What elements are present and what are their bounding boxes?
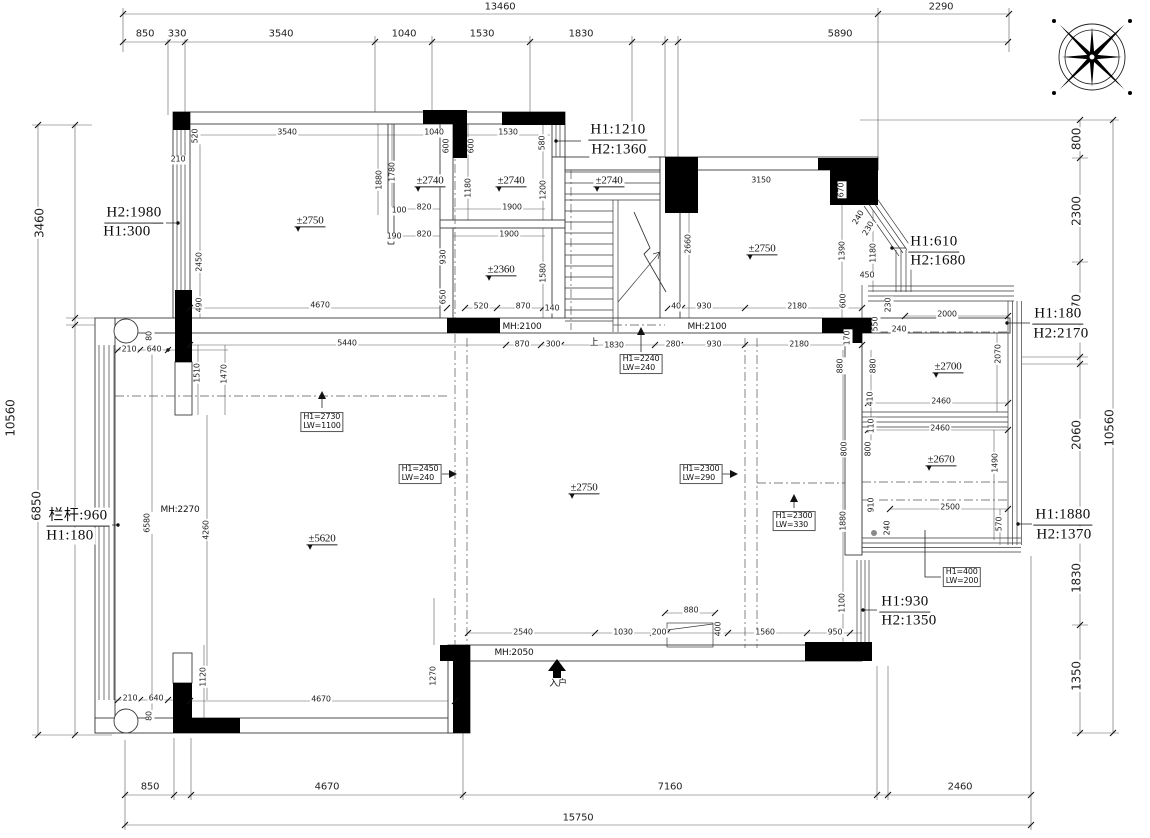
dim-label: 15750: [562, 812, 595, 823]
dim-label: 820: [416, 231, 433, 240]
opening-size-label: H1=2730 LW=1100: [300, 412, 343, 432]
dim-label: 1270: [430, 665, 439, 687]
dim-label: 170: [844, 330, 853, 347]
dim-label: 2300: [1070, 195, 1083, 227]
dim-label: 2460: [930, 398, 952, 407]
dim-label: 190: [386, 233, 403, 242]
dim-label: 240: [891, 326, 908, 335]
dim-label: 930: [440, 249, 449, 266]
dim-label: 2000: [936, 311, 958, 320]
level-mark-triangle-icon: ▼: [747, 254, 752, 262]
dim-label: 1180: [465, 177, 474, 199]
dim-label: 930: [696, 303, 713, 312]
dim-label: 1530: [497, 129, 519, 138]
dim-label: 1830: [603, 342, 625, 351]
dim-label: 100: [391, 207, 408, 216]
leader-label: H2:1680: [908, 253, 967, 270]
dim-label: 650: [440, 289, 449, 306]
opening-height-label: MH:2100: [501, 322, 542, 332]
level-mark-triangle-icon: ▼: [415, 186, 420, 194]
dim-label: 110: [868, 418, 877, 435]
level-mark-triangle-icon: ▼: [307, 544, 312, 552]
level-mark-triangle-icon: ▼: [926, 465, 931, 473]
dim-label: 3540: [268, 28, 295, 39]
dim-label: 4670: [314, 781, 341, 792]
dim-label: 2180: [788, 341, 810, 350]
dim-label: 600: [443, 138, 452, 155]
dim-label: 870: [514, 341, 531, 350]
dim-label: 2290: [928, 1, 955, 12]
dim-label: 6580: [144, 512, 153, 534]
dim-label: 580: [539, 135, 548, 152]
dim-label: 600: [840, 293, 849, 310]
dim-label: 1900: [498, 231, 520, 240]
dim-label: 140: [544, 305, 561, 314]
dim-label: 520: [473, 303, 490, 312]
leader-label: H2:2170: [1031, 326, 1090, 343]
leader-label: H1:610: [908, 234, 959, 253]
dim-label: 2060: [1070, 419, 1083, 451]
level-mark-triangle-icon: ▼: [496, 186, 501, 194]
dim-label: 950: [827, 629, 844, 638]
dim-label: 410: [867, 391, 876, 408]
dim-label: 880: [837, 358, 846, 375]
dim-label: 1180: [870, 242, 879, 264]
opening-size-label: H1=400 LW=200: [943, 567, 981, 587]
opening-size-label: H1=2300 LW=290: [680, 464, 723, 484]
dim-label: 850: [140, 781, 161, 792]
dim-label: 910: [868, 497, 877, 514]
dim-label: 2180: [786, 303, 808, 312]
dim-label: 1830: [568, 28, 595, 39]
opening-size-label: H1=2450 LW=240: [399, 464, 442, 484]
dim-label: 2460: [947, 781, 974, 792]
dim-label: 2540: [512, 629, 534, 638]
dim-label: 600: [468, 138, 477, 155]
dim-label: 210: [122, 695, 139, 704]
leader-label: H2:1980: [104, 205, 163, 224]
dim-label: 1580: [540, 262, 549, 284]
dim-label: 1900: [501, 204, 523, 213]
dim-label: 930: [706, 341, 723, 350]
leader-label: H1:300: [101, 224, 152, 241]
dim-label: 800: [841, 441, 850, 458]
dim-label: 1880: [840, 510, 849, 532]
level-mark-triangle-icon: ▼: [594, 186, 599, 194]
text-label: 上: [590, 338, 599, 348]
opening-height-label: MH:2050: [493, 648, 534, 658]
dim-label: 1490: [992, 452, 1001, 474]
dim-label: 800: [865, 441, 874, 458]
dim-label: 4670: [310, 696, 332, 705]
dim-label: 550: [872, 316, 881, 333]
level-mark-triangle-icon: ▼: [486, 275, 491, 283]
dim-label: 7160: [657, 781, 684, 792]
dim-label: 1200: [540, 179, 549, 201]
dim-label: 200: [651, 629, 668, 638]
dim-label: 400: [715, 621, 724, 638]
dim-label: 40: [670, 303, 682, 312]
dim-label: 1100: [839, 592, 848, 614]
opening-height-label: MH:2100: [686, 322, 727, 332]
dim-label: 4260: [203, 519, 212, 541]
dim-label: 520: [192, 128, 201, 145]
dim-label: 1040: [391, 28, 418, 39]
dim-label: 2660: [685, 233, 694, 255]
leader-label: H1:1880: [1033, 507, 1092, 526]
dim-label: 3540: [276, 129, 298, 138]
dim-label: 230: [885, 297, 894, 314]
dim-label: 880: [870, 358, 879, 375]
dim-label: 330: [167, 28, 188, 39]
level-mark-triangle-icon: ▼: [933, 372, 938, 380]
opening-height-label: MH:2270: [159, 505, 200, 515]
level-mark-triangle-icon: ▼: [295, 226, 300, 234]
dim-label: 2500: [939, 504, 961, 513]
dim-label: 210: [170, 156, 187, 165]
leader-label: H2:1360: [589, 142, 648, 159]
dim-label: 1470: [221, 363, 230, 385]
opening-size-label: H1=2300 LW=330: [773, 511, 816, 531]
dim-label: 240: [884, 520, 893, 537]
dim-label: 670: [838, 182, 847, 199]
dim-label: 3460: [33, 207, 46, 239]
floor-plan-canvas: 1346022908503303540104015301830589034601…: [0, 0, 1150, 838]
dim-label: 820: [416, 204, 433, 213]
dim-label: 1030: [612, 629, 634, 638]
dim-label: 2450: [196, 251, 205, 273]
leader-label: H1:180: [1032, 306, 1083, 325]
leader-label: H2:1370: [1034, 527, 1093, 544]
dim-label: 490: [196, 297, 205, 314]
dim-label: 4670: [309, 302, 331, 311]
dim-label: 570: [996, 516, 1005, 533]
dim-label: 1530: [469, 28, 496, 39]
dim-label: 210: [121, 346, 138, 355]
dim-label: 1120: [200, 666, 209, 688]
leader-label: H1:180: [44, 528, 95, 545]
dim-label: 1780: [389, 161, 398, 183]
dim-label: 850: [135, 28, 156, 39]
dim-label: 2070: [995, 343, 1004, 365]
leader-label: H1:1210: [588, 122, 647, 141]
annotation-layer: 1346022908503303540104015301830589034601…: [0, 0, 1150, 838]
opening-size-label: H1=2240 LW=240: [620, 354, 663, 374]
dim-label: 870: [515, 303, 532, 312]
dim-label: 280: [665, 341, 682, 350]
dim-label: 13460: [484, 1, 517, 12]
dim-label: 6850: [30, 490, 43, 522]
dim-label: 450: [859, 272, 876, 281]
dim-label: 10560: [4, 398, 17, 437]
dim-label: 1390: [839, 240, 848, 262]
dim-label: 1880: [376, 169, 385, 191]
level-mark-triangle-icon: ▼: [569, 493, 574, 501]
dim-label: 1560: [754, 629, 776, 638]
dim-label: 640: [148, 695, 165, 704]
dim-label: 2460: [929, 425, 951, 434]
dim-label: 5890: [827, 28, 854, 39]
dim-label: 80: [146, 710, 155, 722]
dim-label: 880: [683, 607, 700, 616]
dim-label: 640: [146, 346, 163, 355]
leader-label: 栏杆:960: [46, 508, 109, 527]
dim-label: 800: [1070, 127, 1083, 151]
dim-label: 1350: [1070, 660, 1083, 692]
dim-label: 5440: [336, 340, 358, 349]
dim-label: 1510: [194, 362, 203, 384]
dim-label: 3150: [750, 177, 772, 186]
dim-label: 1830: [1070, 562, 1083, 594]
dim-label: 1040: [423, 129, 445, 138]
dim-label: 10560: [1103, 408, 1116, 447]
dim-label: 230: [861, 220, 877, 239]
text-label: 入户: [549, 679, 567, 689]
dim-label: 80: [146, 330, 155, 342]
leader-label: H2:1350: [879, 613, 938, 630]
leader-label: H1:930: [879, 594, 930, 613]
dim-label: 300: [545, 341, 562, 350]
